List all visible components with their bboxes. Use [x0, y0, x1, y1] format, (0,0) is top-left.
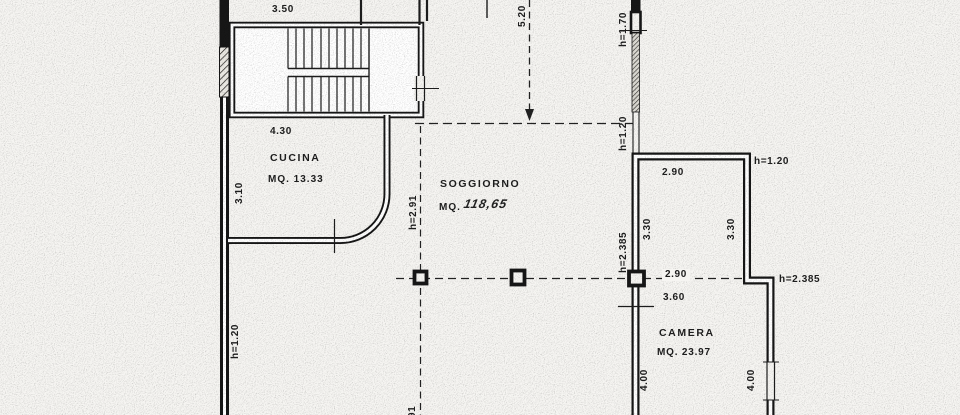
dim-430: 4.30: [270, 126, 292, 138]
dim-330-right: 3.30: [726, 218, 738, 240]
dim-partial-bottom: 91: [407, 406, 419, 415]
room-area-soggiorno-value: 118,65: [463, 198, 509, 210]
dim-400-right: 4.00: [746, 369, 758, 391]
room-label-camera: CAMERA: [659, 327, 715, 339]
height-170: h=1.70: [618, 12, 630, 47]
dim-400-left: 4.00: [639, 369, 651, 391]
room-label-soggiorno: SOGGIORNO: [440, 178, 520, 190]
room-area-camera: MQ. 23.97: [657, 347, 711, 359]
height-2385-wall: h=2.385: [618, 232, 630, 273]
dim-290-top: 2.90: [662, 167, 684, 179]
dim-310: 3.10: [234, 182, 246, 204]
height-291: h=2.91: [408, 195, 420, 230]
height-120-right: h=1.20: [754, 156, 789, 168]
floor-plan: 3.50 5.20 h=1.70 4.30 CUCINA MQ. 13.33 3…: [0, 0, 960, 415]
room-area-cucina: MQ. 13.33: [268, 174, 324, 186]
dim-290-bottom: 2.90: [662, 269, 690, 281]
dim-350: 3.50: [272, 4, 294, 16]
height-120-left: h=1.20: [230, 324, 242, 359]
dim-360: 3.60: [663, 292, 685, 304]
dim-520: 5.20: [517, 5, 529, 27]
room-label-cucina: CUCINA: [270, 152, 320, 164]
height-2385-right: h=2.385: [779, 274, 820, 286]
room-area-soggiorno-prefix: MQ.: [439, 202, 461, 214]
height-120-parapet: h=1.20: [618, 116, 630, 151]
dim-330-left: 3.30: [642, 218, 654, 240]
